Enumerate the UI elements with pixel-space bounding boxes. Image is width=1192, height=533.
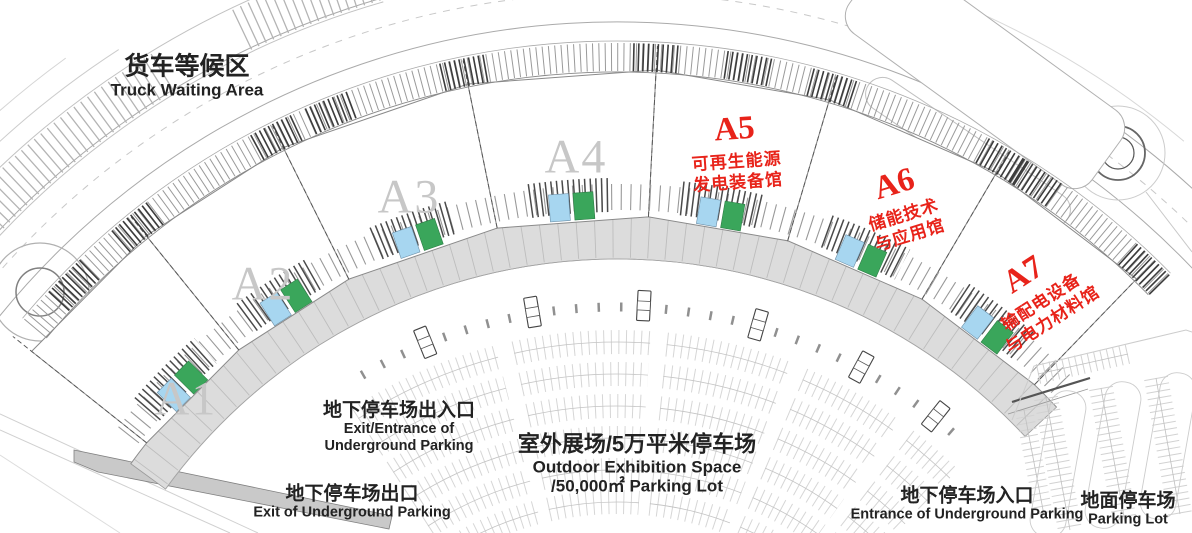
entrance-marker-green [721, 201, 745, 231]
ground-parking-en: Parking Lot [1080, 512, 1175, 528]
hall-label-a3: A3 [378, 170, 441, 225]
ug-entrance-en: Entrance of Underground Parking [851, 507, 1084, 523]
parking-row-centerline [740, 527, 800, 533]
ug-exit-entrance-en2: Underground Parking [323, 438, 475, 454]
parking-row-centerline [528, 406, 646, 416]
truck-waiting-area-label: 货车等候区 Truck Waiting Area [111, 52, 264, 99]
underground-entrance-label: 地下停车场入口 Entrance of Underground Parking [851, 485, 1084, 523]
perimeter-road [0, 58, 66, 202]
hall-label-a2: A2 [232, 257, 295, 312]
parking-row-centerline [521, 374, 648, 384]
underground-exit-label: 地下停车场出口 Exit of Underground Parking [253, 483, 450, 521]
outdoor-en2: /50,000㎡ Parking Lot [518, 476, 756, 495]
ug-exit-en: Exit of Underground Parking [253, 505, 450, 521]
parking-stall-row [650, 504, 730, 523]
entrance-marker-green [573, 192, 595, 220]
parking-row-centerline [753, 498, 819, 533]
parking-stall-row [667, 345, 788, 374]
parking-row-centerline [790, 409, 874, 456]
parking-row-centerline [445, 512, 538, 533]
parking-stall-row [778, 439, 856, 483]
parking-stall-row [660, 408, 764, 433]
ug-exit-entrance-en1: Exit/Entrance of [323, 421, 475, 437]
exhibition-site-plan: 货车等候区 Truck Waiting Area A1 A2 A3 A4 A5 … [0, 0, 1192, 533]
truck-waiting-en: Truck Waiting Area [111, 80, 264, 99]
outdoor-exhibition-label: 室外展场/5万平米停车场 Outdoor Exhibition Space /5… [518, 433, 756, 496]
vehicle-footprint-detail [525, 307, 539, 318]
service-dark-cluster [310, 104, 354, 122]
truck-parking-hatch [242, 0, 377, 30]
vehicle-footprint-detail [637, 301, 650, 311]
ug-entrance-zh: 地下停车场入口 [851, 485, 1084, 506]
parking-stall-row [906, 440, 950, 478]
parking-stall-row [790, 409, 874, 456]
parking-stall-row [663, 376, 776, 403]
hall-label-a5: A5 可再生能源 发电装备馆 [653, 107, 818, 198]
parking-stall-row [521, 374, 648, 384]
ug-exit-zh: 地下停车场出口 [253, 483, 450, 504]
ug-exit-entrance-zh: 地下停车场出入口 [323, 400, 475, 421]
outdoor-zh: 室外展场/5万平米停车场 [518, 433, 756, 458]
entrance-marker-blue [696, 197, 720, 227]
entrance-marker-blue [548, 194, 570, 222]
parking-stall-row [445, 512, 538, 533]
underground-exit-entrance-label: 地下停车场出入口 Exit/Entrance of Underground Pa… [323, 400, 475, 454]
parking-stall-row [803, 380, 893, 431]
service-dark-cluster [257, 127, 300, 148]
outdoor-en1: Outdoor Exhibition Space [518, 457, 756, 476]
ground-parking-label: 地面停车场 Parking Lot [1080, 490, 1175, 528]
hall-label-a4: A4 [545, 130, 608, 185]
parking-row-centerline [660, 408, 764, 433]
parking-row-centerline [663, 376, 776, 403]
perimeter-road [1146, 192, 1192, 252]
hall-label-a1: A1 [155, 372, 218, 427]
parking-stall-row [514, 342, 650, 353]
parking-stall-row [740, 527, 800, 533]
ground-parking-zh: 地面停车场 [1080, 490, 1175, 511]
truck-waiting-zh: 货车等候区 [111, 52, 264, 80]
